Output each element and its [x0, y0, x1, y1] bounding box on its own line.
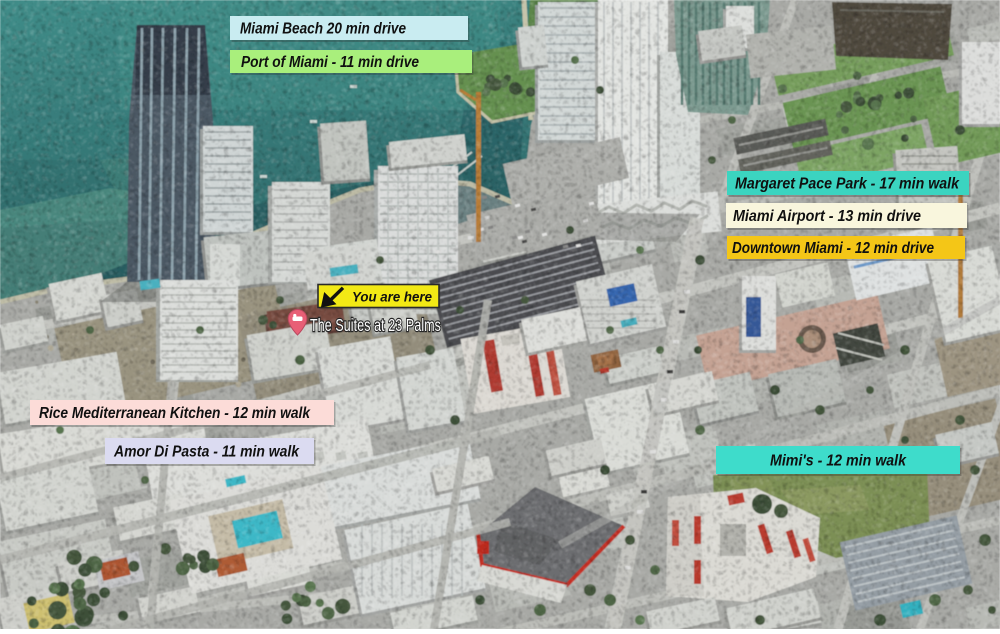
svg-text:Miami Beach 20 min drive: Miami Beach 20 min drive — [240, 20, 406, 37]
svg-text:Miami Airport - 13 min drive: Miami Airport - 13 min drive — [733, 208, 921, 225]
svg-text:Downtown Miami - 12 min drive: Downtown Miami - 12 min drive — [732, 240, 934, 257]
svg-text:Port of Miami - 11 min drive: Port of Miami - 11 min drive — [241, 54, 419, 71]
svg-text:Margaret Pace Park - 17 min wa: Margaret Pace Park - 17 min walk — [735, 175, 960, 192]
svg-text:You are here: You are here — [352, 288, 432, 304]
svg-text:Mimi's - 12 min walk: Mimi's - 12 min walk — [770, 452, 907, 469]
svg-text:Amor Di Pasta - 11 min walk: Amor Di Pasta - 11 min walk — [113, 443, 300, 460]
svg-text:The Suites at 23 Palms: The Suites at 23 Palms — [310, 315, 441, 335]
svg-text:Rice Mediterranean Kitchen - 1: Rice Mediterranean Kitchen - 12 min walk — [39, 405, 311, 422]
